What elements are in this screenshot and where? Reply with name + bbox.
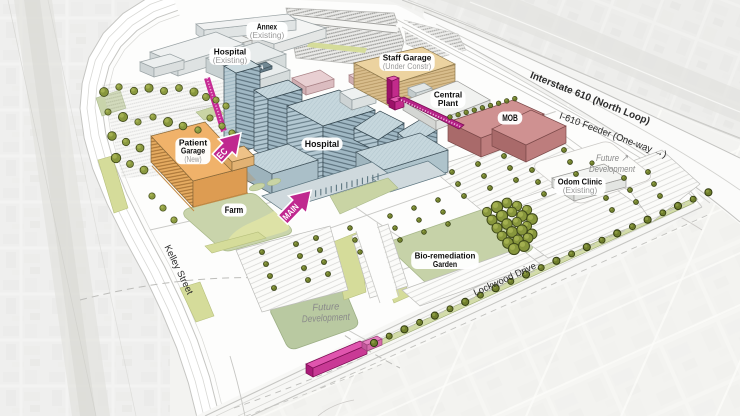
svg-text:Future ↗: Future ↗ [596,153,628,164]
svg-text:Development: Development [589,164,635,175]
svg-text:Farm: Farm [225,205,243,215]
svg-text:(Existing): (Existing) [213,55,248,65]
svg-text:(Under Constr): (Under Constr) [383,61,431,71]
svg-text:(Existing): (Existing) [250,30,285,40]
svg-text:Garden: Garden [433,259,457,269]
svg-text:Hospital: Hospital [305,139,339,149]
svg-text:(Existing): (Existing) [563,185,598,195]
svg-text:MOB: MOB [502,113,518,123]
svg-text:Plant: Plant [438,98,458,108]
svg-text:(New): (New) [184,154,201,164]
